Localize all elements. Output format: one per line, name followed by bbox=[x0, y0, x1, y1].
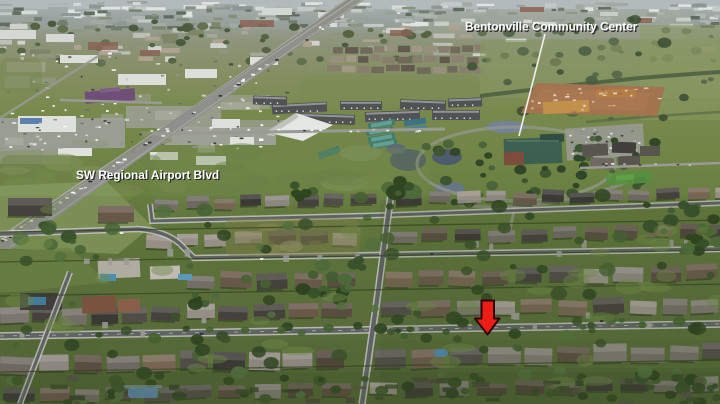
svg-text:SW Regional Airport Blvd: SW Regional Airport Blvd bbox=[76, 168, 219, 182]
svg-text:Bentonville Community Center: Bentonville Community Center bbox=[465, 20, 638, 34]
